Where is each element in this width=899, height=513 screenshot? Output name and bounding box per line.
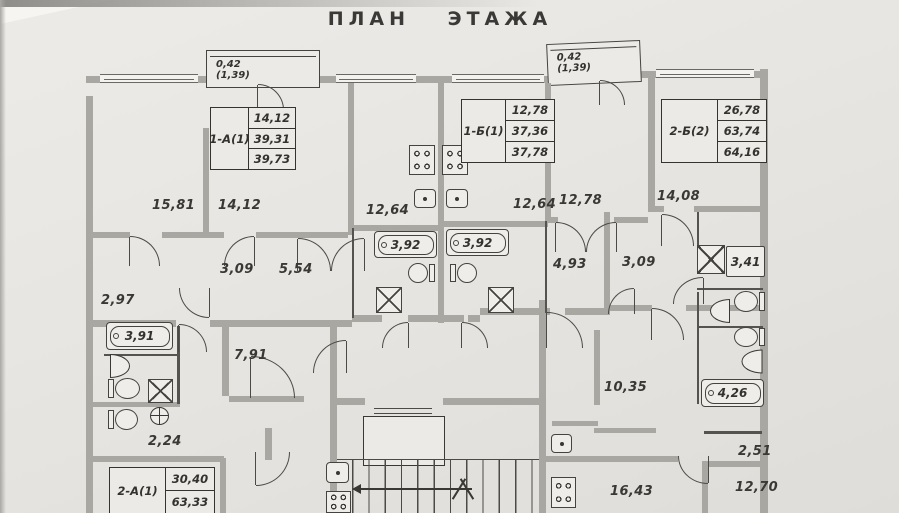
apartment-table-1a1: 1-А(1) 14,12 39,31 39,73 — [210, 107, 296, 170]
door-arc — [586, 222, 616, 252]
bathtub-icon: 4,26 — [701, 379, 764, 407]
sink-icon — [110, 354, 130, 378]
wall — [408, 315, 464, 322]
room-area-label: 4,26 — [718, 386, 748, 400]
wall — [546, 456, 678, 462]
photo-edge-artifact — [0, 0, 6, 513]
wall — [444, 221, 548, 227]
room-area-label: 2,24 — [148, 434, 182, 449]
apartment-name: 2-А(1) — [110, 468, 166, 513]
kitchen-sink-icon — [414, 189, 436, 208]
apartment-value: 26,78 — [718, 100, 766, 120]
door-arc — [313, 340, 346, 373]
apartment-name: 2-Б(2) — [662, 100, 718, 162]
apartment-name: 1-Б(1) — [462, 100, 506, 162]
wall — [552, 421, 598, 426]
room-area-label: 12,70 — [735, 480, 778, 495]
wall — [614, 217, 648, 223]
wall — [594, 330, 600, 405]
shower-room-box: 3,41 — [726, 246, 765, 277]
round-sink-icon — [150, 407, 169, 425]
apartment-value: 37,36 — [506, 120, 554, 141]
apartment-table-2a1: 2-А(1) 30,40 63,33 — [109, 467, 215, 513]
wall — [337, 398, 365, 405]
apartment-name: 1-А(1) — [211, 108, 249, 169]
wall — [348, 83, 354, 235]
apartment-table-2b2: 2-Б(2) 26,78 63,74 64,16 — [661, 99, 767, 163]
wall — [708, 461, 762, 467]
room-area-label: 14,12 — [218, 198, 261, 213]
wall — [222, 326, 229, 396]
stove-icon — [409, 145, 435, 175]
apartment-value: 39,31 — [249, 128, 295, 149]
room-area-label: 3,09 — [622, 255, 656, 270]
shower-cabin-icon — [148, 379, 173, 403]
floor-plan-title: ПЛАН ЭТАЖА — [0, 8, 880, 30]
room-area-label: 3,09 — [220, 262, 254, 277]
apartment-value: 37,78 — [506, 141, 554, 162]
door-arc — [256, 452, 290, 486]
balcony-area-label: 0,42(1,39) — [557, 51, 592, 74]
partition-wall — [697, 288, 763, 290]
wall — [220, 458, 226, 513]
room-area-label: 10,35 — [604, 380, 647, 395]
wall — [565, 308, 610, 315]
wall — [468, 315, 480, 322]
door-arc — [673, 277, 703, 304]
apartment-value: 30,40 — [166, 468, 214, 490]
balcony-area-label: 0,42(1,39) — [216, 59, 250, 81]
wall — [92, 232, 130, 238]
door-arc — [331, 238, 364, 271]
room-area-label: 3,91 — [125, 329, 155, 343]
partition-wall — [545, 221, 547, 313]
kitchen-sink-icon — [446, 189, 468, 208]
room-area-label: 4,93 — [553, 257, 587, 272]
stairs-direction-arrow — [354, 488, 472, 490]
toilet-icon — [734, 327, 765, 347]
bathtub-icon: 3,91 — [106, 322, 173, 350]
room-area-label: 3,92 — [391, 238, 421, 252]
room-area-label: 2,97 — [101, 293, 135, 308]
apartment-value: 39,73 — [249, 148, 295, 169]
apartment-value: 12,78 — [506, 100, 554, 120]
room-area-label: 5,54 — [279, 262, 313, 277]
room-area-label: 2,51 — [738, 444, 772, 459]
wall — [648, 206, 664, 212]
apartment-value: 64,16 — [718, 141, 766, 162]
wall — [594, 428, 656, 433]
partition-wall — [704, 431, 762, 434]
toilet-icon — [108, 409, 138, 430]
shower-cabin-icon — [697, 245, 725, 274]
toilet-icon — [734, 291, 765, 312]
balcony: 0,42(1,39) — [206, 50, 320, 88]
door-arc — [600, 80, 625, 105]
room-area-label: 12,64 — [513, 197, 556, 212]
room-area-label: 15,81 — [152, 198, 195, 213]
door-arc — [179, 288, 209, 318]
toilet-icon — [108, 378, 140, 399]
photo-edge-artifact — [0, 0, 539, 7]
wall — [443, 398, 539, 405]
room-area-label: 7,91 — [234, 348, 268, 363]
washing-machine-icon — [376, 287, 402, 313]
elevator-door — [374, 408, 432, 414]
stove-icon — [551, 477, 576, 508]
wall — [86, 96, 93, 513]
wall — [92, 456, 224, 462]
room-area-label: 12,64 — [366, 203, 409, 218]
door-arc — [662, 214, 694, 246]
bathtub-icon: 3,92 — [446, 229, 509, 256]
wall — [694, 206, 764, 212]
washing-machine-icon — [488, 287, 514, 313]
room-area-label: 16,43 — [610, 484, 653, 499]
door-arc — [547, 312, 583, 348]
apartment-value: 14,12 — [249, 108, 295, 128]
partition-wall — [697, 292, 699, 404]
toilet-icon — [450, 263, 477, 283]
apartment-value: 63,74 — [718, 120, 766, 141]
wall — [648, 76, 655, 212]
window — [100, 74, 198, 83]
wall — [203, 128, 209, 236]
door-arc — [462, 322, 488, 348]
room-area-label: 12,78 — [559, 193, 602, 208]
bathtub-icon: 3,92 — [374, 231, 437, 258]
room-area-label: 3,92 — [463, 236, 493, 250]
door-arc — [179, 324, 207, 352]
sink-icon — [742, 350, 763, 374]
apartment-value: 63,33 — [166, 490, 214, 513]
window — [656, 69, 754, 78]
sink-icon — [710, 299, 730, 323]
floor-plan: ПЛАН ЭТАЖА 0,42(1,39) 0,42(1,39) — [0, 0, 899, 513]
toilet-icon — [408, 263, 435, 283]
window — [452, 74, 544, 83]
wall — [256, 232, 348, 238]
door-arc — [556, 222, 586, 252]
kitchen-sink-icon — [551, 434, 572, 453]
window — [336, 74, 416, 83]
door-arc — [652, 308, 684, 340]
wall — [352, 315, 382, 322]
door-arc — [608, 288, 634, 314]
wall — [162, 232, 224, 238]
wall — [438, 83, 444, 323]
stairs — [337, 459, 539, 513]
room-area-label: 14,08 — [657, 189, 700, 204]
door-arc — [130, 236, 160, 266]
balcony: 0,42(1,39) — [546, 40, 642, 86]
door-arc — [678, 456, 708, 484]
room-area-label: 3,41 — [731, 255, 761, 269]
apartment-table-1b1: 1-Б(1) 12,78 37,36 37,78 — [461, 99, 555, 163]
door-arc — [382, 322, 408, 348]
